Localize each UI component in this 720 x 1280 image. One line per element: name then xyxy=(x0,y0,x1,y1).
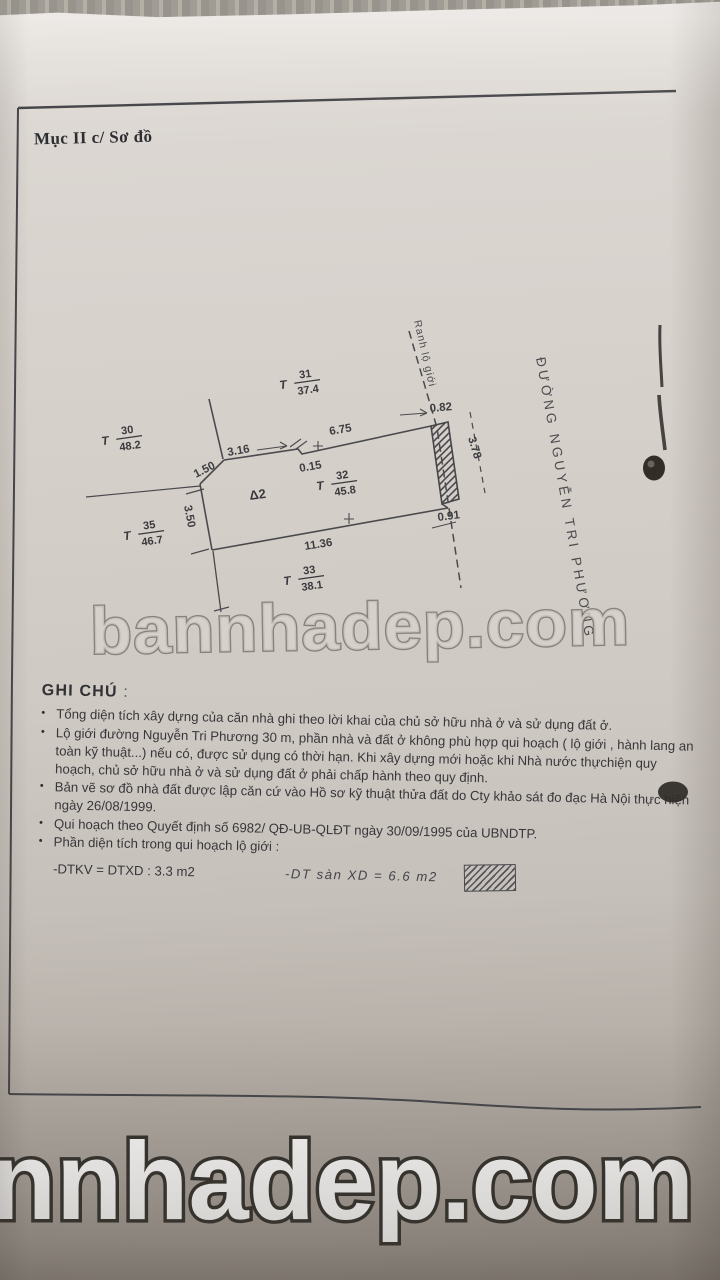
ink-blob-right-highlight xyxy=(648,461,655,468)
photo-overlay: bannhadep.com nnhadep.com xyxy=(0,0,720,1280)
watermark-middle: bannhadep.com xyxy=(90,584,631,667)
ink-blob-over-text xyxy=(658,782,688,803)
photographed-land-document: 1.50 3.16 0.15 6.75 0.82 3.78 0.91 3.50 … xyxy=(0,0,720,1280)
watermark-bottom: nnhadep.com xyxy=(0,1120,694,1243)
ink-blob-right xyxy=(643,456,665,481)
